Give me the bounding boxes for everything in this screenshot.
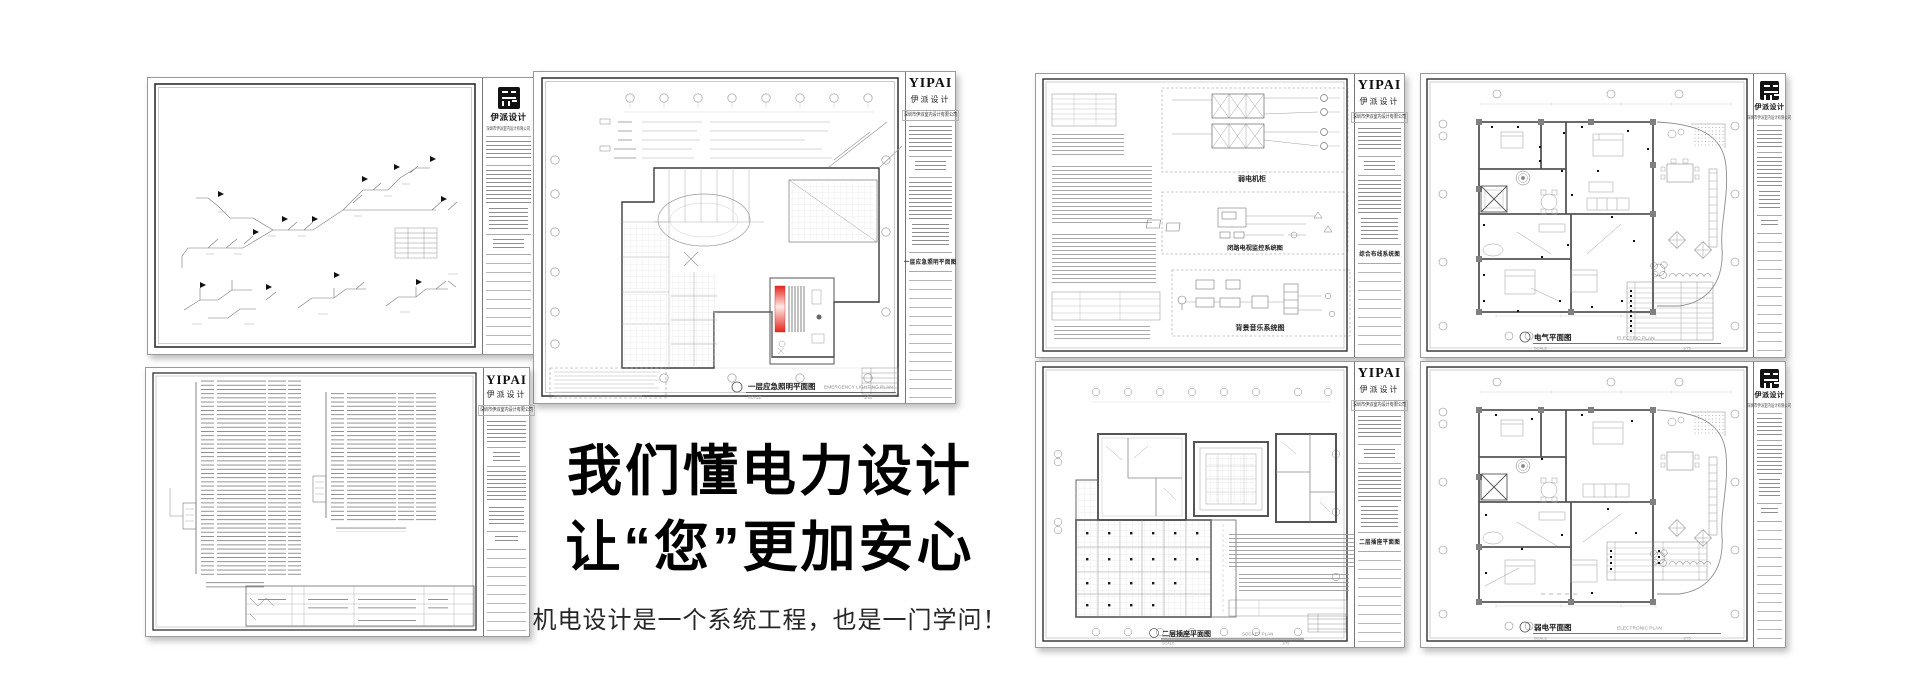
scale-value: 1/50	[864, 395, 873, 400]
yipai-wordmark-cn: 伊派设计	[1360, 96, 1400, 107]
divider	[1358, 175, 1401, 176]
breaker-schedule-left	[170, 380, 301, 588]
titleblock-form-rows	[1757, 233, 1782, 353]
hero-title-line1: 我们懂电力设计	[525, 434, 1015, 510]
titleblock-text-lines	[909, 182, 952, 220]
titleblock-text-lines	[487, 471, 526, 503]
titleblock-text-lines	[912, 224, 950, 248]
scale-value: 1/75	[1683, 636, 1692, 641]
axonometric-diagram-canvas	[148, 78, 482, 354]
titleblock-text-lines	[1358, 128, 1401, 152]
sheet-emergency-lighting-plan: 一层应急照明平面图 EMERGENCY LIGHTING PLAN SCALE …	[533, 71, 956, 404]
divider	[486, 165, 531, 166]
titleblock-text-lines	[1364, 449, 1394, 459]
titleblock-text-lines	[1358, 468, 1401, 502]
divider	[1757, 440, 1782, 441]
titleblock-text-lines	[1757, 130, 1782, 148]
scale-value: 1/75	[1282, 642, 1289, 646]
titleblock-text-lines	[1361, 218, 1399, 240]
company-name: 深圳市伊派室内设计有限公司	[902, 110, 959, 121]
legend-table	[1607, 542, 1707, 580]
sheet-elv-plan: 弱电平面图 ELECTRONIC PLAN SCALE 1/75 伊派设计 深圳…	[1420, 361, 1786, 648]
divider	[1358, 244, 1401, 245]
legend-rows	[600, 119, 832, 158]
distribution-diagram-canvas	[146, 368, 483, 636]
drawing-title-en: SOCKET PLAN	[1242, 632, 1273, 637]
sheet-systems-diagram: 弱电机柜 闭路电视监控系统图	[1035, 73, 1405, 358]
divider	[909, 252, 952, 253]
titleblock-text-lines	[1761, 508, 1777, 516]
scale-label: SCALE	[1534, 636, 1547, 641]
titleblock-text-lines	[489, 208, 527, 230]
electric-plan-canvas: 电气平面图 ELECTRIC PLAN SCALE 1/75	[1421, 74, 1753, 357]
company-name: 深圳市伊派室内设计有限公司	[487, 126, 531, 132]
drawing-title: 二层插座平面图 SOCKET PLAN SCALE 1/75	[1150, 629, 1305, 646]
titleblock: YIPAI 伊派设计 深圳市伊派室内设计有限公司 一层应急照明平面图	[905, 72, 955, 403]
elv-plan-canvas: 弱电平面图 ELECTRONIC PLAN SCALE 1/75	[1421, 362, 1753, 647]
hero-text-block: 我们懂电力设计 让“您”更加安心 机电设计是一个系统工程，也是一门学问！	[525, 434, 1015, 635]
scale-label: SCALE	[1534, 346, 1547, 351]
titleblock-text-lines	[1759, 479, 1780, 499]
sheet-axonometric-diagram: 伊派设计 深圳市伊派室内设计有限公司	[147, 77, 535, 355]
divider	[1358, 463, 1401, 464]
red-stair-highlight	[775, 286, 785, 332]
titleblock: YIPAI 伊派设计 深圳市伊派室内设计有限公司 二层插座平面图	[1354, 362, 1404, 647]
yipai-wordmark: YIPAI	[909, 77, 953, 91]
titleblock: 伊派设计 深圳市伊派室内设计有限公司	[1753, 362, 1785, 647]
titleblock-form-rows	[909, 271, 952, 399]
emergency-lighting-canvas: 一层应急照明平面图 EMERGENCY LIGHTING PLAN SCALE …	[534, 72, 905, 403]
sheet-frame	[1427, 367, 1747, 641]
yipai-wordmark-cn: 伊派设计	[1755, 102, 1785, 112]
divider	[1757, 413, 1782, 414]
titleblock: 伊派设计 深圳市伊派室内设计有限公司	[482, 78, 534, 354]
company-name: 深圳市伊派室内设计有限公司	[1748, 115, 1792, 121]
legend-table	[1627, 282, 1713, 340]
wiring-detail-table	[246, 586, 474, 626]
yipai-wordmark-cn: 伊派设计	[490, 111, 526, 123]
garden	[1651, 410, 1727, 594]
isometric-pipe-network	[182, 166, 457, 318]
drawing-title: 弱电平面图 ELECTRONIC PLAN SCALE 1/75	[1520, 622, 1721, 641]
titleblock: 伊派设计 深圳市伊派室内设计有限公司	[1753, 74, 1785, 357]
titleblock-form-rows	[1358, 551, 1401, 643]
titleblock-text-lines	[495, 536, 518, 544]
titleblock-drawing-title: 综合布线系统图	[1359, 249, 1400, 258]
titleblock-text-lines	[486, 141, 531, 161]
titleblock-form-rows	[486, 254, 531, 350]
divider	[486, 136, 531, 137]
divider	[486, 234, 531, 235]
interior-linework	[622, 168, 877, 368]
scale-value: 1/75	[1683, 346, 1692, 351]
divider	[1757, 215, 1782, 216]
company-name: 深圳市伊派室内设计有限公司	[1351, 400, 1408, 411]
yipai-seal-logo-icon	[1760, 81, 1779, 100]
yipai-wordmark: YIPAI	[486, 373, 527, 386]
titleblock-form-rows	[1757, 521, 1782, 643]
titleblock-text-lines	[1358, 416, 1401, 440]
drawing-title-cn: 弱电平面图	[1534, 622, 1572, 632]
cabinet-diagram-box	[1162, 88, 1348, 172]
titleblock-text-lines	[489, 507, 523, 527]
garden	[1651, 122, 1727, 306]
divider	[487, 466, 526, 467]
yipai-seal-logo-icon	[1760, 369, 1779, 388]
upper-rooms	[1076, 434, 1336, 522]
drawing-title: 电气平面图 ELECTRIC PLAN SCALE 1/75	[1520, 332, 1721, 351]
titleblock-text-lines	[1358, 180, 1401, 214]
elevator-stair	[1481, 186, 1507, 212]
company-name: 深圳市伊派室内设计有限公司	[1748, 403, 1792, 409]
titleblock-form-rows	[487, 549, 526, 632]
titleblock-form-rows	[1358, 263, 1401, 353]
stair-room-plan	[770, 278, 834, 364]
sheet-frame	[1427, 79, 1747, 351]
divider	[909, 177, 952, 178]
company-name: 深圳市伊派室内设计有限公司	[1351, 112, 1408, 123]
titleblock: YIPAI 伊派设计 深圳市伊派室内设计有限公司	[483, 368, 529, 636]
scale-label: SCALE	[1162, 642, 1175, 646]
yipai-wordmark-cn: 伊派设计	[911, 94, 951, 105]
elevator-stair	[1481, 474, 1507, 500]
notes-block	[1229, 534, 1354, 616]
divider	[909, 156, 952, 157]
titleblock-text-lines	[1761, 220, 1777, 228]
elv-symbols	[1485, 414, 1637, 594]
yipai-wordmark-cn: 伊派设计	[1360, 384, 1400, 395]
company-name: 深圳市伊派室内设计有限公司	[478, 405, 535, 416]
scale-label: SCALE	[748, 395, 762, 400]
cctv-label: 闭路电视监控系统图	[1227, 244, 1283, 252]
divider	[1358, 444, 1401, 445]
drawing-title-en: EMERGENCY LIGHTING PLAN	[824, 385, 893, 391]
drawing-title-en: ELECTRONIC PLAN	[1617, 626, 1662, 632]
drawing-title: 一层应急照明平面图 EMERGENCY LIGHTING PLAN SCALE …	[732, 381, 896, 400]
titleblock-text-lines	[1364, 161, 1394, 171]
titleblock-text-lines	[1757, 445, 1782, 475]
divider	[1358, 532, 1401, 533]
drawing-title-en: ELECTRIC PLAN	[1617, 336, 1655, 342]
titleblock-drawing-title: 二层插座平面图	[1359, 537, 1400, 546]
divider	[487, 531, 526, 532]
titleblock-text-lines	[1757, 418, 1782, 436]
cabinet-label: 弱电机柜	[1238, 174, 1266, 183]
hero-subtitle: 机电设计是一个系统工程，也是一门学问！	[525, 600, 1015, 635]
titleblock: YIPAI 伊派设计 深圳市伊派室内设计有限公司 综合布线系统图	[1354, 74, 1404, 357]
mini-legend-table	[1308, 614, 1346, 632]
divider	[1358, 156, 1401, 157]
titleblock-text-lines	[487, 421, 526, 443]
breaker-schedule-right	[313, 390, 436, 532]
left-notes-column	[1052, 94, 1160, 342]
yipai-wordmark: YIPAI	[1358, 79, 1402, 93]
reference-table	[395, 228, 437, 258]
systems-diagram-canvas: 弱电机柜 闭路电视监控系统图	[1036, 74, 1354, 357]
titleblock-text-lines	[915, 161, 945, 173]
drawing-title-cn: 电气平面图	[1534, 332, 1572, 342]
socket-plan-canvas: 二层插座平面图 SOCKET PLAN SCALE 1/75	[1036, 362, 1354, 647]
titleblock-text-lines	[486, 170, 531, 204]
titleblock-text-lines	[493, 239, 525, 249]
tiny-annotation-ticks	[192, 184, 458, 324]
lower-wing-rooms	[1076, 520, 1236, 617]
sheet-distribution-diagram: YIPAI 伊派设计 深圳市伊派室内设计有限公司	[145, 367, 530, 637]
bgm-label: 背景音乐系统图	[1236, 323, 1285, 332]
yipai-wordmark-cn: 伊派设计	[1755, 390, 1785, 400]
sheet-electric-plan: 电气平面图 ELECTRIC PLAN SCALE 1/75 伊派设计 深圳市伊…	[1420, 73, 1786, 358]
divider	[1757, 125, 1782, 126]
divider	[1757, 503, 1782, 504]
titleblock-drawing-title: 一层应急照明平面图	[904, 257, 957, 266]
divider	[487, 447, 526, 448]
hero-title-line2: 让“您”更加安心	[525, 510, 1015, 586]
titleblock-text-lines	[493, 452, 520, 462]
sheet-socket-plan: 二层插座平面图 SOCKET PLAN SCALE 1/75 YIPAI 伊派设…	[1035, 361, 1405, 648]
titleblock-text-lines	[909, 126, 952, 152]
yipai-wordmark: YIPAI	[1358, 367, 1402, 381]
titleblock-text-lines	[1759, 191, 1780, 211]
titleblock-text-lines	[1361, 506, 1399, 528]
divider	[1757, 152, 1782, 153]
furniture	[1483, 132, 1629, 302]
drawing-title-cn: 二层插座平面图	[1162, 629, 1211, 638]
titleblock-text-lines	[1757, 157, 1782, 187]
sheet-frame	[155, 84, 475, 347]
drawing-title-cn: 一层应急照明平面图	[748, 381, 816, 391]
roof-diagonals	[829, 122, 902, 168]
banner-root: 伊派设计 深圳市伊派室内设计有限公司	[0, 0, 1920, 700]
yipai-seal-logo-icon	[498, 87, 520, 109]
notes-box	[550, 368, 666, 398]
yipai-wordmark-cn: 伊派设计	[487, 389, 527, 400]
